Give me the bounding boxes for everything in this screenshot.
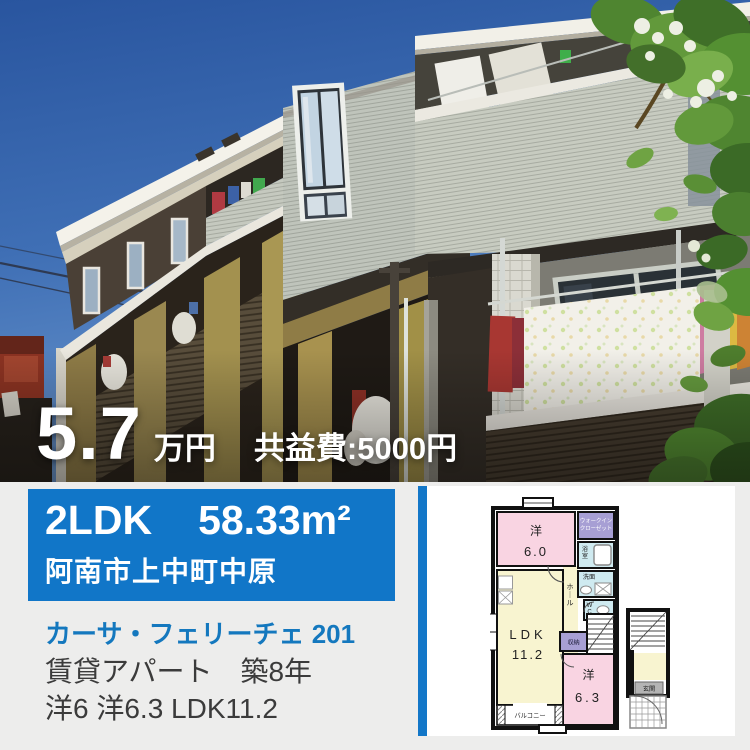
balcony-hatch-left xyxy=(497,705,505,725)
room-label-wic-1: ウォークイン xyxy=(580,517,612,525)
room-label-bedroom2: 洋 xyxy=(582,667,594,682)
room-label-hall: ホ｜ル xyxy=(567,583,574,607)
room-label-ldk: LDK xyxy=(509,627,546,642)
room-size-bedroom2: 6.3 xyxy=(575,690,602,705)
price-overlay: 5.7 万円 共益費:5000円 xyxy=(36,401,457,468)
floorplan-canvas: 洋 6.0 ウォークイン クローゼット 浴室 洗面 WC ホ｜ル LDK 11.… xyxy=(427,486,735,736)
door-tab xyxy=(539,725,566,733)
maintenance-fee: 共益費:5000円 xyxy=(254,423,457,468)
accent-stripe xyxy=(418,486,427,736)
room-label-storage: 収納 xyxy=(567,639,579,647)
floorplan-graphic: 洋 6.0 ウォークイン クローゼット 浴室 洗面 WC ホ｜ル LDK 11.… xyxy=(427,486,735,736)
room-label-entrance: 玄関 xyxy=(643,685,655,693)
layout-type: 2LDK xyxy=(45,499,152,542)
floorplan-panel: 洋 6.0 ウォークイン クローゼット 浴室 洗面 WC ホ｜ル LDK 11.… xyxy=(418,486,735,736)
summary-banner: 2LDK 58.33m² 阿南市上中町中原 xyxy=(28,489,395,601)
rent-amount: 5.7 xyxy=(36,401,142,468)
rent-unit: 万円 xyxy=(154,423,216,468)
property-photo: 5.7 万円 共益費:5000円 xyxy=(0,0,750,482)
balcony-hatch-right xyxy=(555,705,563,725)
annex-landing xyxy=(634,653,666,680)
property-type-age: 賃貸アパート 築8年 xyxy=(45,650,312,690)
property-name[interactable]: カーサ・フェリーチェ 201 xyxy=(45,614,355,651)
room-label-wic-2: クローゼット xyxy=(580,524,612,532)
kitchen-counter-icon xyxy=(499,576,513,589)
room-label-balcony: バルコニー xyxy=(514,712,545,720)
bathtub-icon xyxy=(594,545,611,565)
sink-icon xyxy=(581,586,592,594)
layout-area-row: 2LDK 58.33m² xyxy=(45,499,395,542)
room-label-washroom: 洗面 xyxy=(583,573,595,581)
toilet-icon xyxy=(597,606,609,614)
room-size-bedroom1: 6.0 xyxy=(524,544,548,559)
room-label-bath: 浴室 xyxy=(582,545,589,560)
room-label-bedroom1: 洋 xyxy=(530,523,542,538)
address: 阿南市上中町中原 xyxy=(45,550,395,590)
window-gap-bottom xyxy=(513,703,547,707)
room-size-ldk: 11.2 xyxy=(512,647,544,662)
room-summary: 洋6 洋6.3 LDK11.2 xyxy=(45,687,278,727)
floor-area: 58.33m² xyxy=(198,499,351,542)
annex-wall xyxy=(628,650,634,696)
